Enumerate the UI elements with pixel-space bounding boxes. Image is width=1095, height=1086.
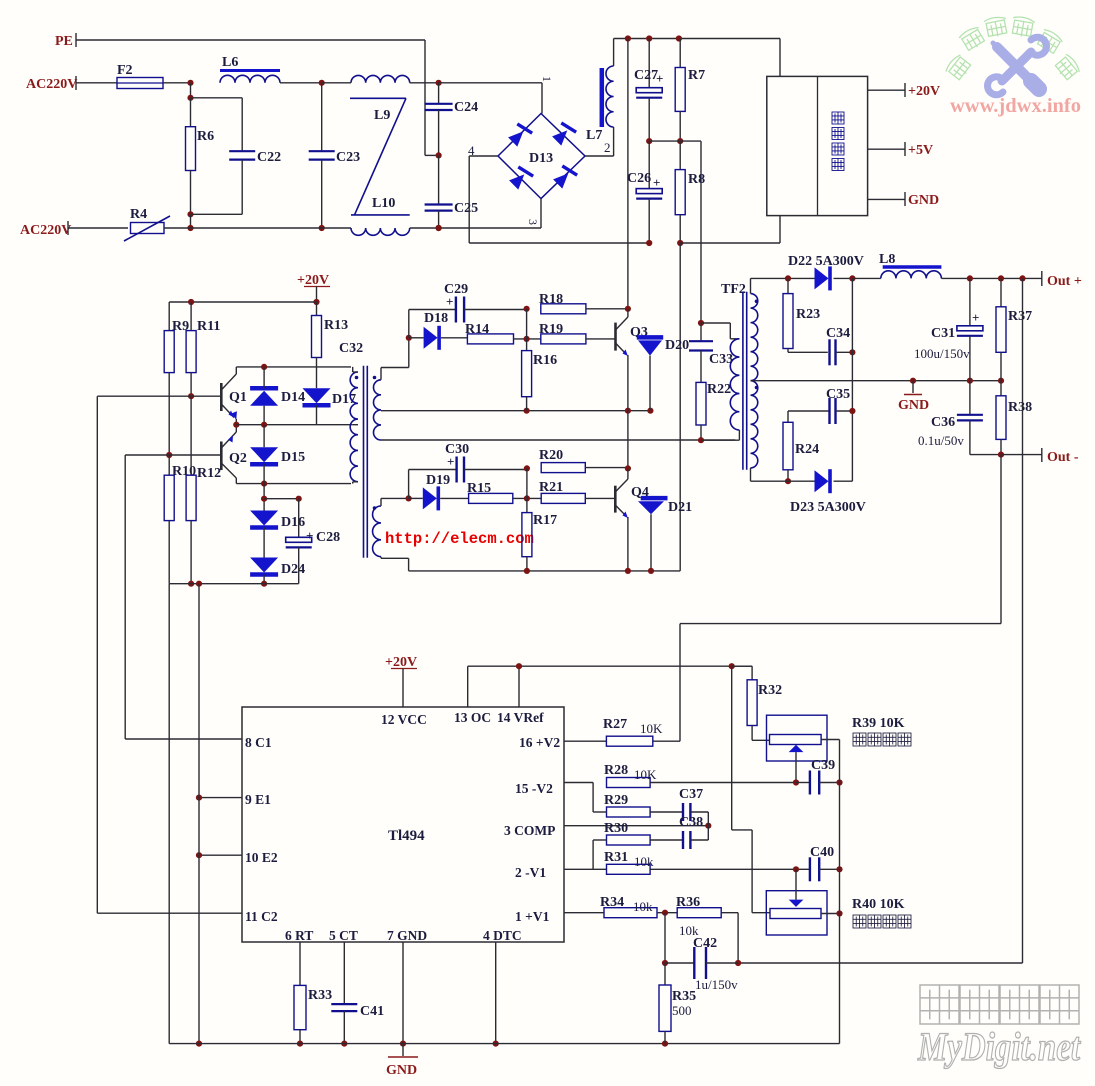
svg-text:4 DTC: 4 DTC: [483, 928, 522, 943]
svg-text:12 VCC: 12 VCC: [381, 712, 427, 727]
svg-text:R23: R23: [796, 307, 820, 322]
svg-text:R17: R17: [533, 513, 557, 528]
svg-text:R38: R38: [1008, 400, 1032, 415]
svg-text:C33: C33: [709, 352, 733, 367]
svg-text:D13: D13: [529, 151, 553, 166]
svg-text:C23: C23: [336, 150, 360, 165]
svg-text:8 C1: 8 C1: [245, 735, 272, 750]
svg-text:R29: R29: [604, 793, 628, 808]
svg-text:C28: C28: [316, 530, 340, 545]
svg-text:C37: C37: [679, 787, 703, 802]
svg-text:R20: R20: [539, 448, 563, 463]
svg-text:C26: C26: [627, 171, 651, 186]
svg-text:Q1: Q1: [229, 390, 247, 405]
svg-text:R36: R36: [676, 895, 700, 910]
svg-text:+: +: [656, 71, 663, 86]
svg-text:R34: R34: [600, 895, 624, 910]
svg-text:C24: C24: [454, 100, 478, 115]
svg-text:R37: R37: [1008, 309, 1032, 324]
svg-text:GND: GND: [898, 398, 929, 413]
svg-text:7 GND: 7 GND: [387, 928, 427, 943]
svg-text:L8: L8: [879, 252, 895, 267]
svg-text:10k: 10k: [634, 854, 654, 869]
svg-text:R35: R35: [672, 989, 696, 1004]
svg-text:10K: 10K: [640, 721, 663, 736]
svg-text:C41: C41: [360, 1004, 384, 1019]
svg-text:5 CT: 5 CT: [329, 928, 358, 943]
svg-text:Q2: Q2: [229, 451, 247, 466]
svg-text:10 E2: 10 E2: [245, 850, 278, 865]
svg-text:R6: R6: [197, 129, 214, 144]
svg-text:http://elecm.com: http://elecm.com: [385, 530, 534, 548]
svg-text:Out +: Out +: [1047, 274, 1082, 289]
svg-text:C36: C36: [931, 415, 955, 430]
svg-text:R12: R12: [197, 466, 221, 481]
svg-text:10k: 10k: [633, 899, 653, 914]
svg-text:C39: C39: [811, 758, 835, 773]
svg-text:D24: D24: [281, 562, 305, 577]
svg-text:Out -: Out -: [1047, 450, 1079, 465]
svg-text:R32: R32: [758, 683, 782, 698]
svg-text:2: 2: [604, 140, 611, 155]
svg-text:R8: R8: [688, 172, 705, 187]
svg-text:D19: D19: [426, 473, 450, 488]
svg-text:R18: R18: [539, 292, 563, 307]
svg-text:3: 3: [526, 219, 540, 225]
svg-text:R10: R10: [172, 464, 196, 479]
svg-text:D15: D15: [281, 450, 305, 465]
svg-text:PE: PE: [55, 34, 73, 49]
svg-text:D20: D20: [665, 338, 689, 353]
svg-text:R22: R22: [707, 382, 731, 397]
svg-text:3 COMP: 3 COMP: [504, 823, 555, 838]
svg-text:R24: R24: [795, 442, 819, 457]
svg-text:R33: R33: [308, 988, 332, 1003]
svg-text:D22 5A300V: D22 5A300V: [788, 254, 864, 269]
svg-text:R30: R30: [604, 821, 628, 836]
svg-text:+: +: [306, 528, 313, 543]
svg-text:1 +V1: 1 +V1: [515, 909, 550, 924]
svg-text:R14: R14: [465, 322, 489, 337]
svg-text:C35: C35: [826, 387, 850, 402]
svg-text:R21: R21: [539, 480, 563, 495]
svg-text:D16: D16: [281, 515, 305, 530]
svg-text:+5V: +5V: [908, 143, 933, 158]
svg-text:14 VRef: 14 VRef: [497, 710, 544, 725]
svg-text:+20V: +20V: [908, 84, 940, 99]
svg-text:Tl494: Tl494: [388, 828, 425, 844]
svg-text:R15: R15: [467, 481, 491, 496]
svg-text:GND: GND: [386, 1063, 417, 1078]
svg-text:+: +: [653, 175, 660, 190]
svg-text:100u/150v: 100u/150v: [914, 346, 970, 361]
svg-text:C32: C32: [339, 341, 363, 356]
svg-text:R11: R11: [197, 319, 220, 334]
svg-text:R16: R16: [533, 353, 557, 368]
svg-text:C31: C31: [931, 326, 955, 341]
svg-text:9 E1: 9 E1: [245, 792, 271, 807]
svg-text:11 C2: 11 C2: [245, 909, 278, 924]
svg-text:AC220V: AC220V: [26, 77, 77, 92]
svg-text:C25: C25: [454, 201, 478, 216]
svg-text:+: +: [446, 294, 453, 309]
svg-text:R27: R27: [603, 717, 627, 732]
svg-text:R19: R19: [539, 322, 563, 337]
svg-text:R39 10K: R39 10K: [852, 716, 905, 731]
svg-text:L6: L6: [222, 55, 238, 70]
svg-text:R13: R13: [324, 318, 348, 333]
svg-text:15 -V2: 15 -V2: [515, 781, 553, 796]
svg-text:C42: C42: [693, 936, 717, 951]
svg-text:10K: 10K: [634, 767, 657, 782]
svg-text:D14: D14: [281, 390, 305, 405]
svg-text:L10: L10: [372, 196, 395, 211]
svg-text:C34: C34: [826, 326, 850, 341]
svg-text:R4: R4: [130, 207, 147, 222]
svg-text:R28: R28: [604, 763, 628, 778]
svg-text:500: 500: [672, 1003, 692, 1018]
svg-text:R31: R31: [604, 850, 628, 865]
svg-text:D18: D18: [424, 311, 448, 326]
svg-text:+: +: [972, 310, 979, 325]
svg-text:C22: C22: [257, 150, 281, 165]
svg-text:13 OC: 13 OC: [454, 710, 491, 725]
svg-text:6 RT: 6 RT: [285, 928, 313, 943]
svg-text:GND: GND: [908, 193, 939, 208]
svg-text:C27: C27: [634, 68, 658, 83]
svg-text:D23 5A300V: D23 5A300V: [790, 500, 866, 515]
svg-text:+20V: +20V: [297, 273, 329, 288]
svg-text:F2: F2: [117, 63, 133, 78]
svg-text:+: +: [447, 454, 454, 469]
svg-text:www.jdwx.info: www.jdwx.info: [950, 95, 1081, 117]
svg-text:C40: C40: [810, 845, 834, 860]
svg-text:16 +V2: 16 +V2: [519, 735, 560, 750]
svg-text:0.1u/50v: 0.1u/50v: [918, 433, 964, 448]
svg-text:R40 10K: R40 10K: [852, 897, 905, 912]
svg-text:+20V: +20V: [385, 655, 417, 670]
svg-text:1: 1: [540, 76, 554, 82]
svg-text:MyDigit.net: MyDigit.net: [917, 1024, 1081, 1069]
svg-text:L9: L9: [374, 108, 390, 123]
svg-text:2 -V1: 2 -V1: [515, 865, 546, 880]
svg-text:AC220V: AC220V: [20, 223, 71, 238]
svg-text:L7: L7: [586, 128, 602, 143]
svg-text:D21: D21: [668, 500, 692, 515]
svg-text:1u/150v: 1u/150v: [695, 977, 738, 992]
svg-text:R7: R7: [688, 68, 705, 83]
svg-text:C38: C38: [679, 815, 703, 830]
